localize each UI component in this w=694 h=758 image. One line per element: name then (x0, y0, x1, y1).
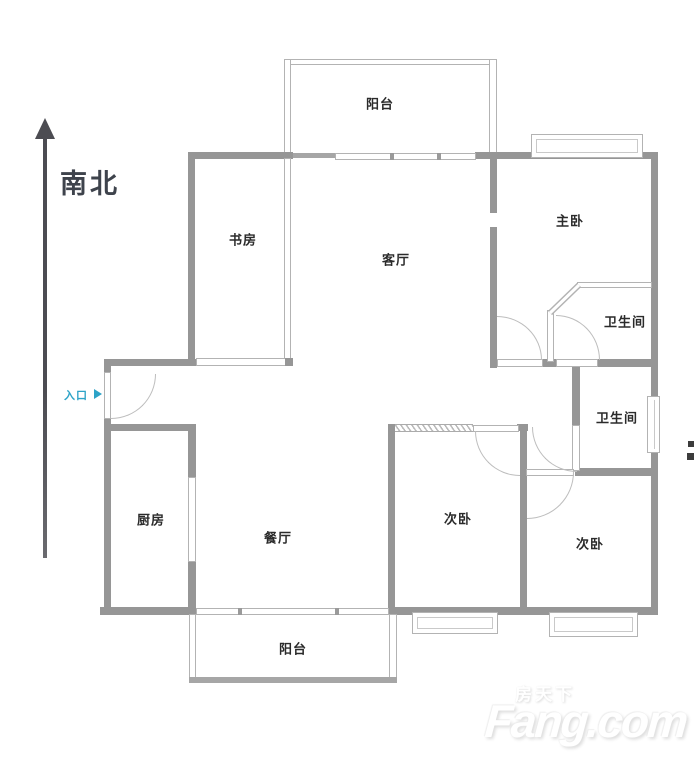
wall (293, 153, 335, 158)
room-label-master-bedroom: 主卧 (556, 211, 584, 230)
door-arc-master-bedroom (497, 316, 542, 360)
compass-arrow-line (43, 137, 47, 558)
window-inner-line (536, 139, 638, 153)
room-label-dining-room: 餐厅 (264, 528, 292, 547)
fang-watermark: 房天下 Fang.com (485, 684, 690, 750)
door-arc-entrance (111, 374, 156, 419)
master-bathroom-wall-west (547, 310, 554, 362)
room-label-second-bedroom-right: 次卧 (576, 534, 604, 553)
clipped-text-artifact (687, 453, 694, 460)
wall (598, 359, 651, 367)
wall (188, 424, 196, 477)
window-band-dining-balcony (196, 608, 389, 615)
wall-notch (490, 213, 497, 227)
wall (490, 152, 497, 368)
watermark-cn-text: 房天下 (515, 680, 575, 705)
balcony-bottom-wall-south (189, 677, 397, 683)
window-wall-study-east (284, 158, 291, 360)
clipped-text-artifact (688, 441, 694, 447)
balcony-top-wall-east (489, 59, 497, 156)
balcony-bottom-wall-east (389, 614, 397, 680)
wall (100, 607, 196, 615)
window-tick (238, 608, 242, 615)
entrance-arrow-icon (94, 389, 102, 399)
door-arc-master-bathroom (556, 315, 600, 360)
room-label-balcony-top: 阳台 (366, 94, 394, 113)
balcony-top-wall-west (284, 59, 291, 156)
window-inner-line (417, 617, 493, 629)
entrance-label: 入口 (64, 387, 88, 403)
window-band-second-bedroom-left (395, 424, 473, 432)
room-label-master-bathroom: 卫生间 (604, 312, 646, 331)
wall (575, 468, 658, 476)
room-label-balcony-bottom: 阳台 (279, 639, 307, 658)
door-arc-shared-bathroom (532, 427, 577, 472)
window-master-bedroom (531, 134, 643, 158)
master-bathroom-wall-north (577, 282, 652, 288)
window-inner-line (654, 400, 655, 449)
wall (104, 359, 196, 366)
wall (188, 152, 293, 159)
balcony-bottom-wall-west (189, 614, 196, 680)
wall (188, 152, 195, 365)
wall (572, 364, 580, 427)
door-arc-second-bedroom-right (527, 472, 574, 519)
window-tick (390, 153, 394, 160)
window-shared-bathroom (647, 396, 660, 453)
room-label-kitchen: 厨房 (137, 510, 165, 529)
entrance-door-leaf (104, 372, 111, 419)
wall (651, 152, 658, 615)
room-label-second-bedroom-left: 次卧 (444, 509, 472, 528)
compass-label: 南北 (60, 162, 120, 201)
window-band-study-south (196, 358, 286, 366)
compass-arrow-head-icon (35, 118, 55, 139)
window-band-living-balcony (335, 153, 476, 160)
master-door-leaf (497, 359, 543, 367)
window-inner-line (554, 617, 633, 632)
room-label-shared-bathroom: 卫生间 (596, 408, 638, 427)
window-tick (335, 608, 339, 615)
balcony-top-wall-north (284, 59, 497, 65)
wall (104, 418, 111, 615)
room-label-living-room: 客厅 (382, 250, 410, 269)
master-bathroom-door-leaf (556, 359, 598, 367)
door-arc-second-bedroom-left (475, 431, 520, 476)
room-label-study: 书房 (229, 230, 257, 249)
wall (285, 358, 293, 366)
window-second-bedroom-left (412, 612, 498, 634)
watermark-en-text: Fang.com (483, 694, 688, 748)
window-tick (437, 153, 441, 160)
wall (520, 428, 527, 615)
wall (104, 424, 196, 431)
kitchen-sliding-door (188, 477, 196, 562)
floor-plan: 南北 (0, 0, 694, 758)
wall (388, 424, 395, 615)
window-second-bedroom-right (549, 612, 638, 637)
